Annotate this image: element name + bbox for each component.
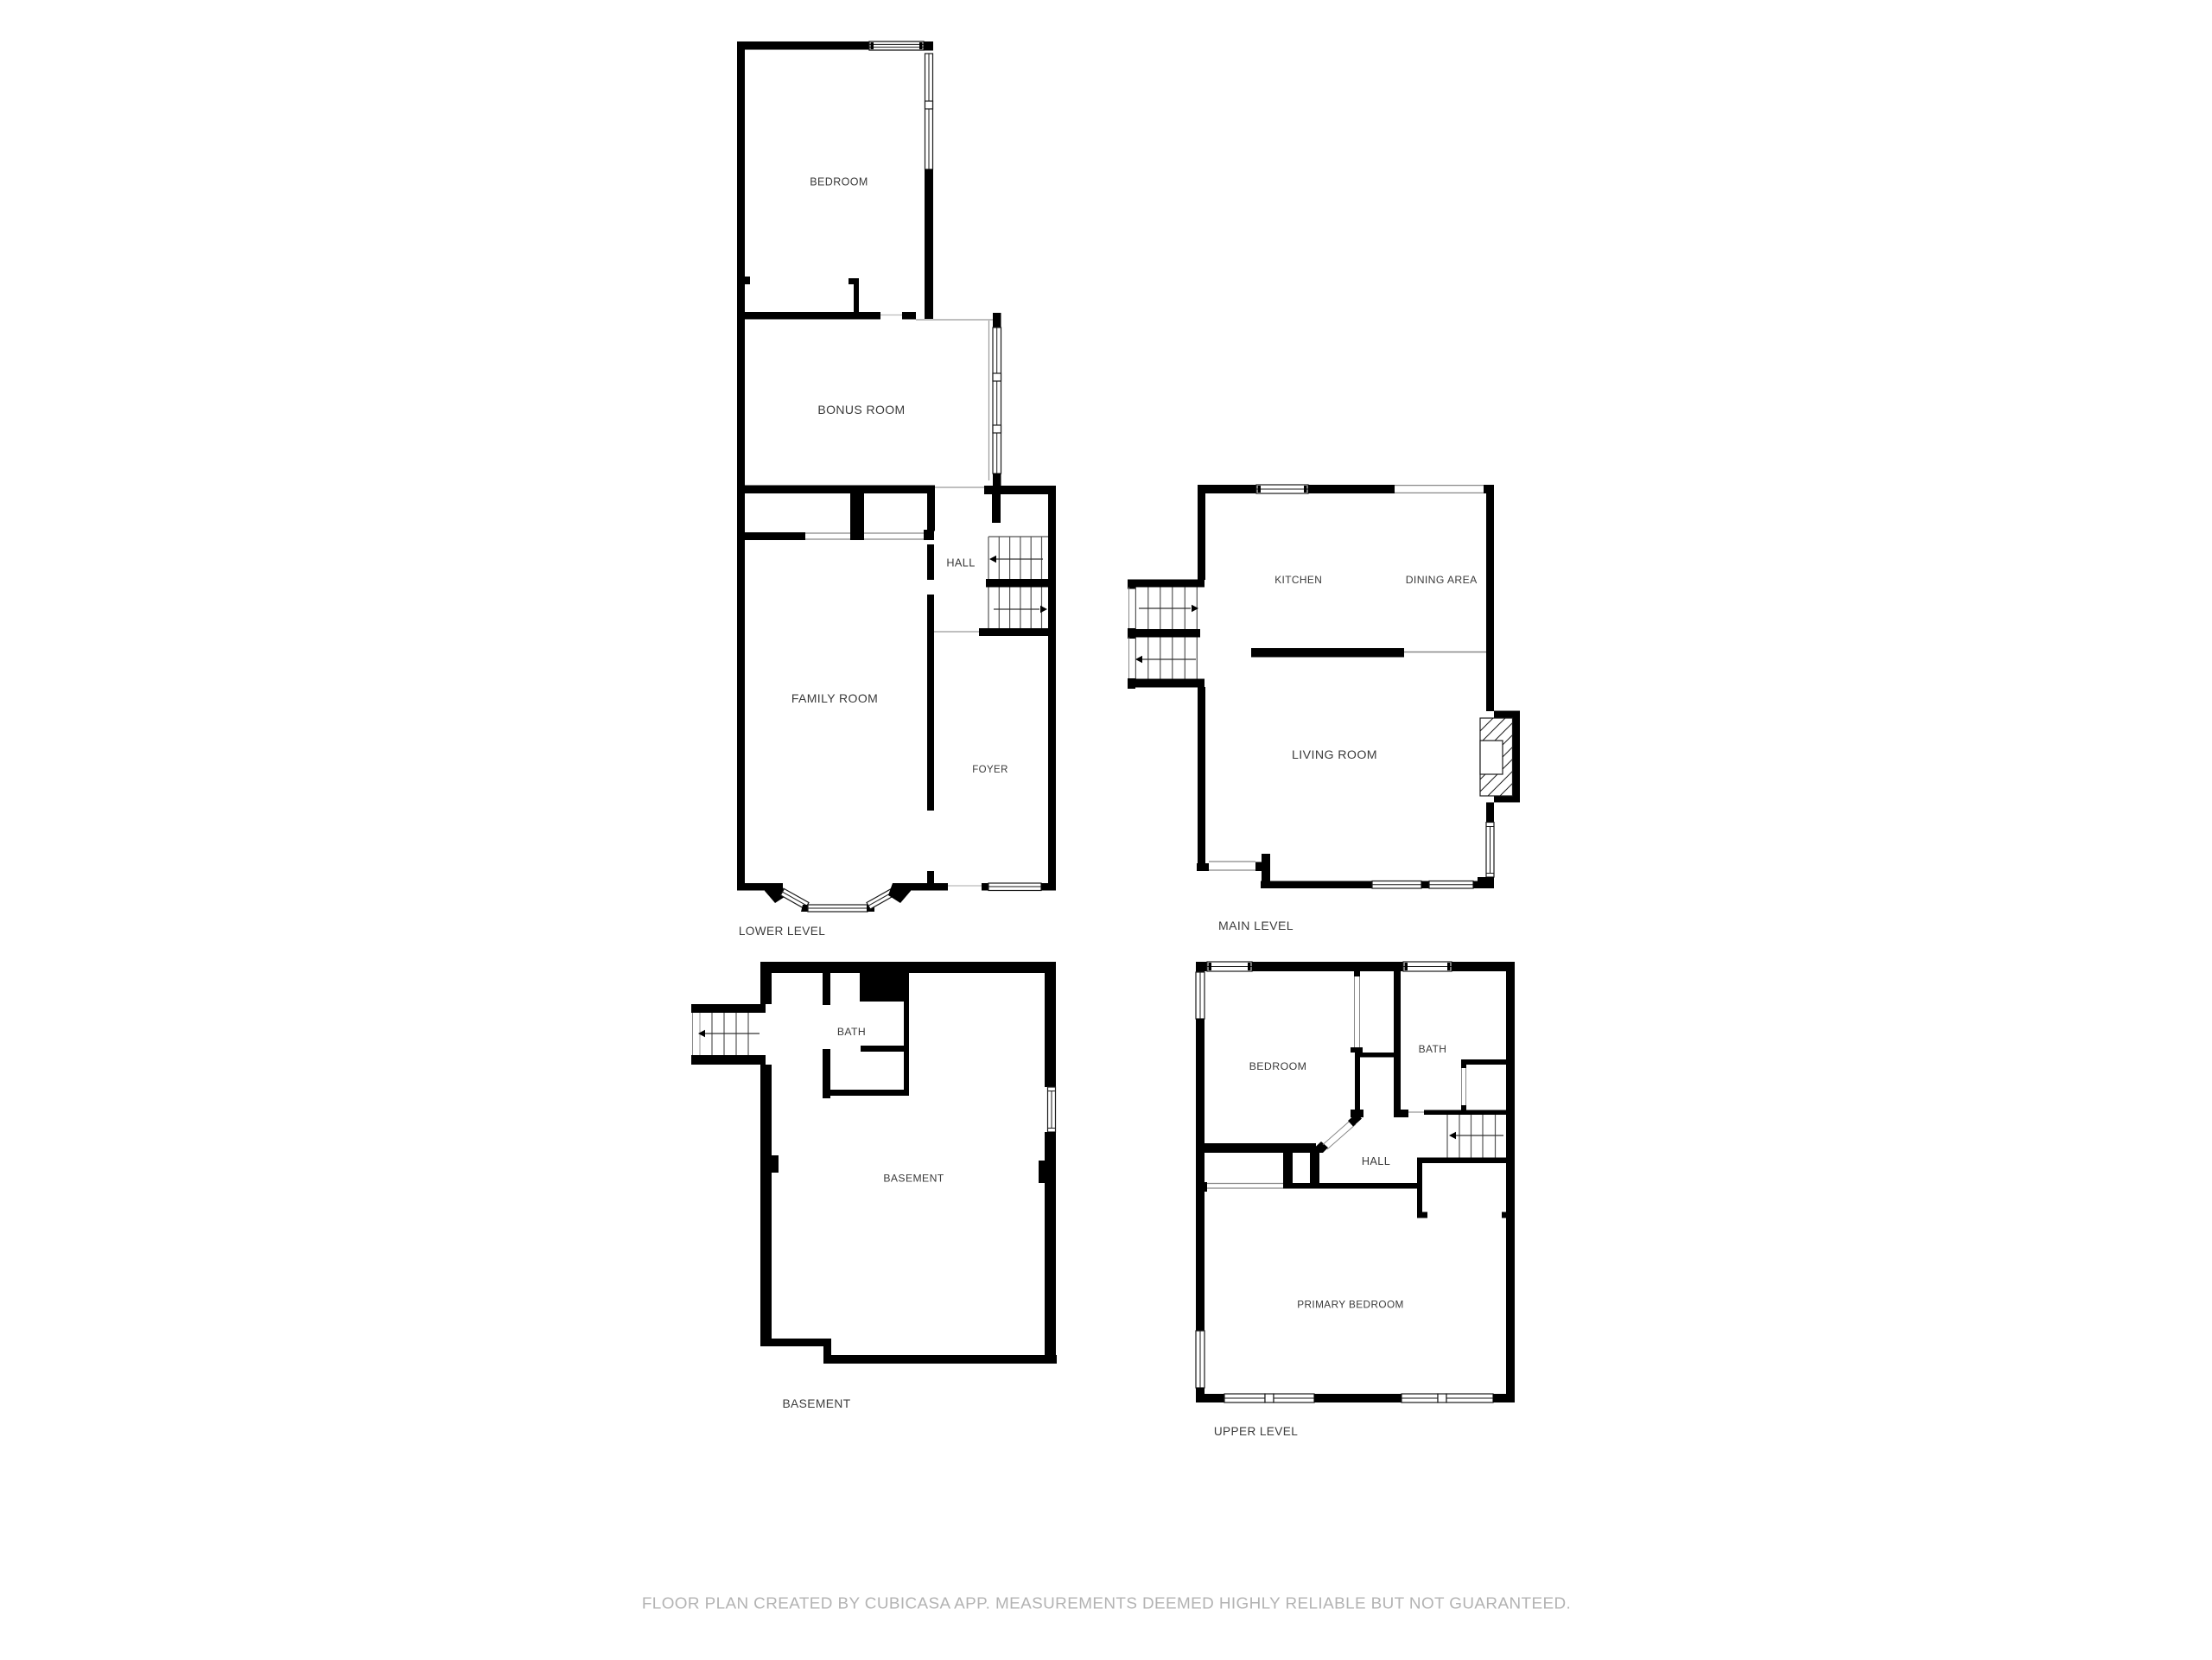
svg-text:UPPER LEVEL: UPPER LEVEL: [1214, 1425, 1298, 1438]
svg-text:FAMILY ROOM: FAMILY ROOM: [791, 691, 878, 705]
svg-text:BASEMENT: BASEMENT: [782, 1397, 850, 1410]
svg-text:KITCHEN: KITCHEN: [1274, 574, 1322, 586]
svg-text:PRIMARY BEDROOM: PRIMARY BEDROOM: [1297, 1299, 1404, 1311]
svg-text:MAIN LEVEL: MAIN LEVEL: [1218, 919, 1294, 932]
svg-text:LOWER LEVEL: LOWER LEVEL: [739, 925, 825, 938]
svg-text:FLOOR PLAN CREATED BY CUBICASA: FLOOR PLAN CREATED BY CUBICASA APP. MEAS…: [642, 1595, 1571, 1613]
svg-text:BEDROOM: BEDROOM: [1249, 1060, 1307, 1072]
svg-text:BEDROOM: BEDROOM: [810, 176, 868, 188]
svg-text:BATH: BATH: [837, 1026, 866, 1038]
svg-text:BONUS ROOM: BONUS ROOM: [817, 403, 905, 417]
svg-text:DINING AREA: DINING AREA: [1406, 574, 1478, 586]
svg-text:BATH: BATH: [1419, 1043, 1447, 1055]
svg-text:HALL: HALL: [1362, 1155, 1390, 1167]
svg-text:HALL: HALL: [946, 557, 975, 569]
svg-text:BASEMENT: BASEMENT: [883, 1173, 944, 1185]
svg-text:FOYER: FOYER: [972, 765, 1008, 775]
svg-text:LIVING ROOM: LIVING ROOM: [1292, 748, 1377, 762]
